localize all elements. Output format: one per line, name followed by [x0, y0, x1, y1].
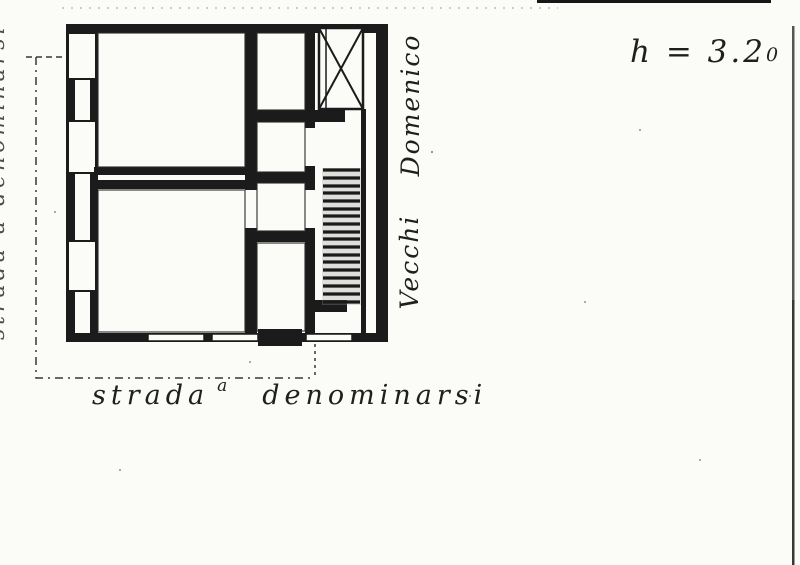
street-label-left: strada a denominarsi: [0, 40, 17, 340]
height-value-suffix: 0: [766, 44, 781, 66]
street-label-bottom: stradaadenominarsi: [92, 380, 487, 411]
height-value: h = 3.2: [630, 34, 766, 70]
owner-name-vecchi: Vecchi: [395, 202, 427, 322]
owner-name-domenico: Domenico: [396, 25, 428, 185]
staircase: [322, 168, 361, 305]
scanned-floor-plan-document: h = 3.20 Domenico Vecchi stradaadenomina…: [0, 0, 800, 565]
height-annotation: h = 3.20: [630, 34, 781, 70]
street-word-strada: strada: [92, 380, 209, 411]
street-superscript-a: a: [217, 376, 232, 396]
entrance-threshold: [258, 329, 302, 346]
crossed-shaft-box: [319, 28, 363, 109]
street-word-denominarsi: denominarsi: [262, 380, 487, 411]
scan-artifact-top-line: [537, 0, 771, 3]
